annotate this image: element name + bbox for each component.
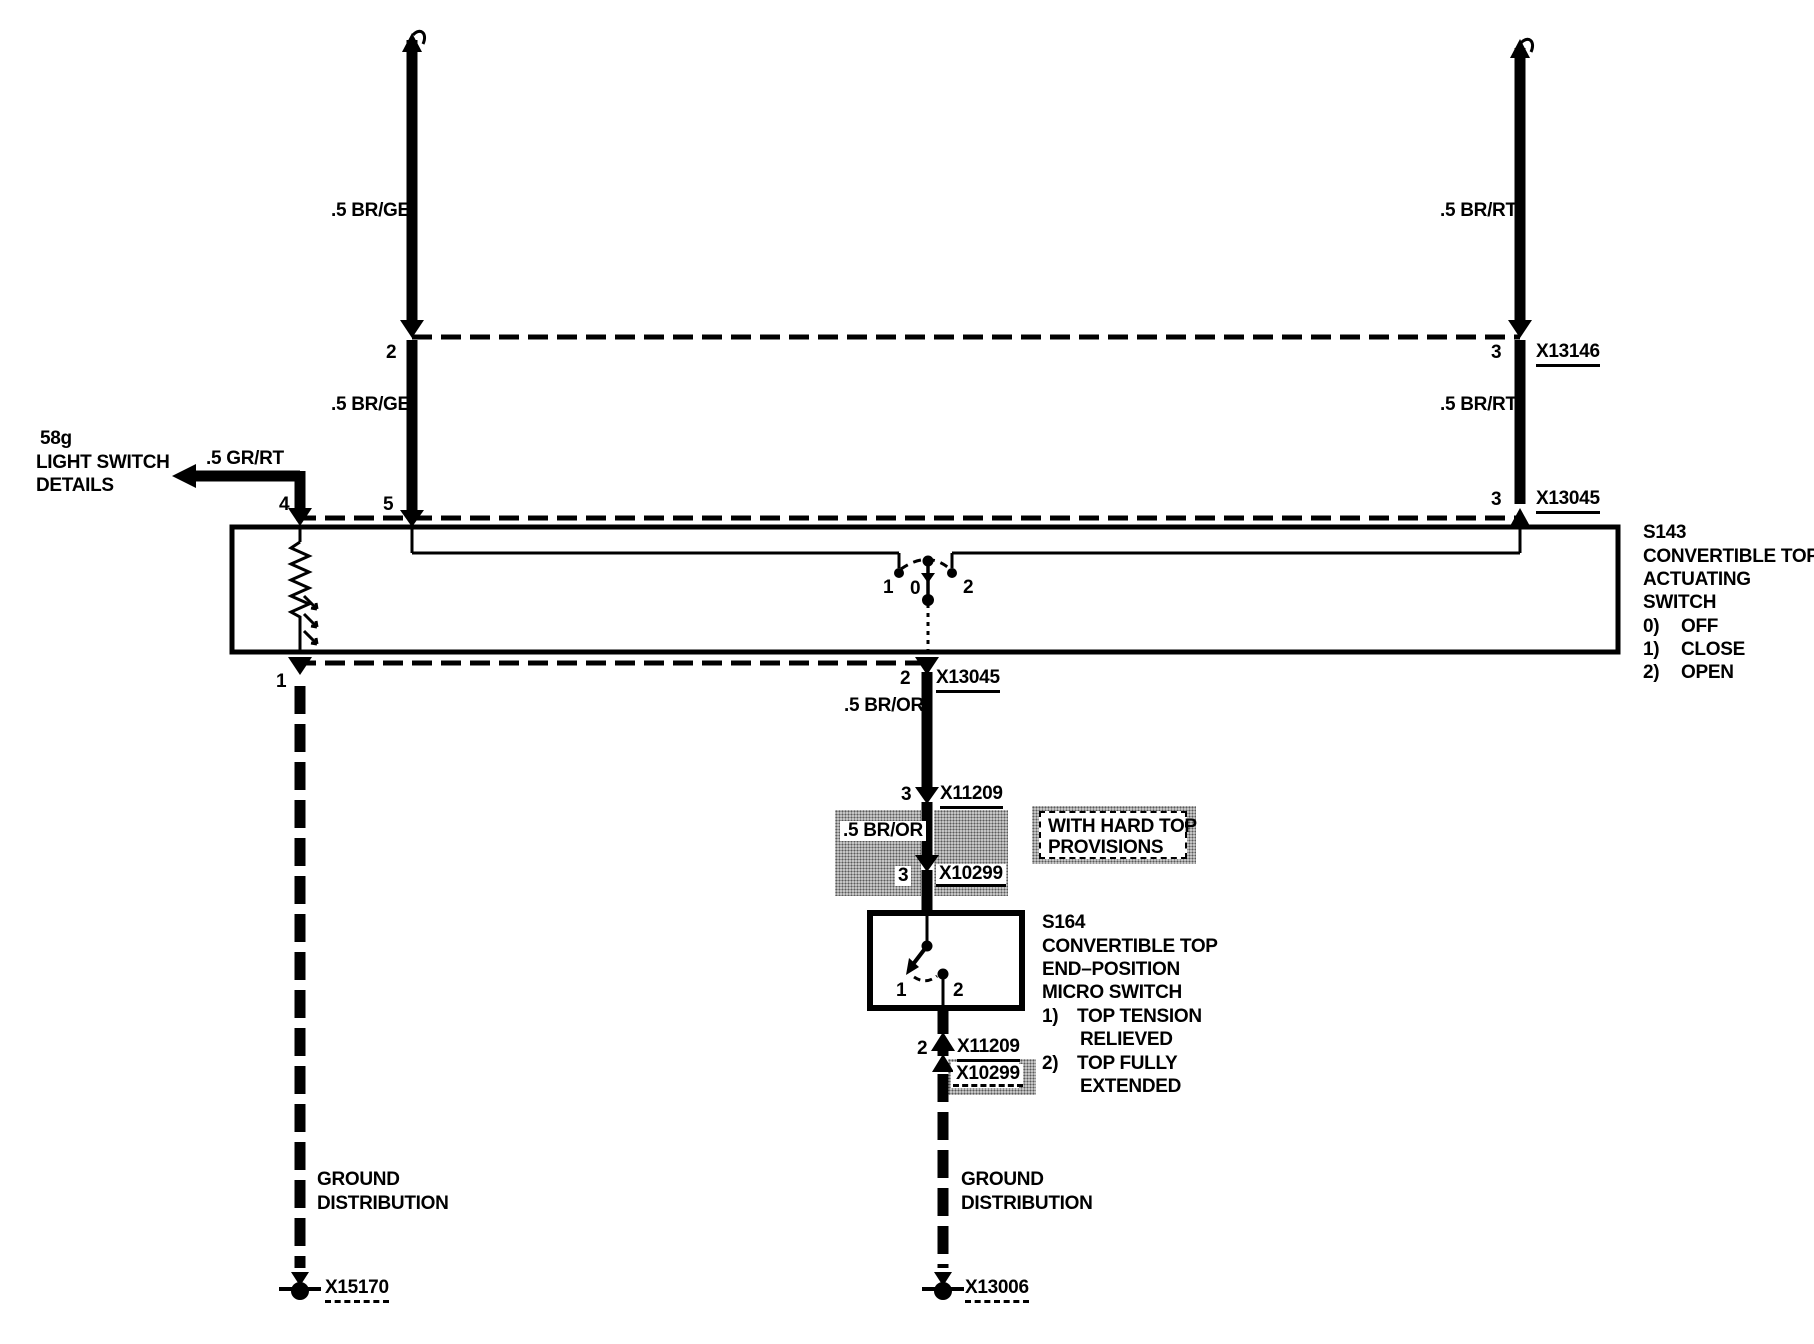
- connector-x11209-exit-label: X11209: [957, 1037, 1020, 1062]
- wire-label-br-or-upper: .5 BR/OR: [844, 696, 924, 716]
- light-switch-code: 58g: [40, 429, 72, 449]
- connector-x13045-right-label: X13045: [1536, 489, 1600, 514]
- s143-pos1-key: 1): [1643, 640, 1659, 660]
- ground-terminal-x15170: [279, 1272, 321, 1300]
- connector-x13006-label: X13006: [965, 1278, 1029, 1303]
- s164-note1-line1: TOP TENSION: [1077, 1007, 1202, 1027]
- light-switch-note-line2: DETAILS: [36, 476, 114, 496]
- hardtop-note-line2: PROVISIONS: [1048, 838, 1163, 858]
- s143-contact1-dot: [894, 568, 904, 578]
- s143-pos1-value: CLOSE: [1681, 640, 1745, 660]
- connector-x10299-exit-label: X10299: [953, 1064, 1023, 1087]
- s143-pos2-key: 2): [1643, 663, 1659, 683]
- ground-left-line2: DISTRIBUTION: [317, 1194, 449, 1214]
- s164-note1-line2: RELIEVED: [1080, 1030, 1173, 1050]
- ground-terminal-x13006: [922, 1272, 964, 1300]
- s164-code: S164: [1042, 913, 1085, 933]
- s164-note2-line2: EXTENDED: [1080, 1077, 1181, 1097]
- s143-pos2-value: OPEN: [1681, 663, 1734, 683]
- arrow-left-light-switch: [172, 464, 196, 488]
- ground-middle-line2: DISTRIBUTION: [961, 1194, 1093, 1214]
- arrow-up-top-right: [1510, 39, 1530, 58]
- light-switch-note-line1: LIGHT SWITCH: [36, 453, 170, 473]
- connector-x13146-label: X13146: [1536, 342, 1600, 367]
- s143-pos0-value: OFF: [1681, 617, 1718, 637]
- arrow-down-pin1: [288, 657, 312, 675]
- arrow-up-s164-x11209: [931, 1032, 955, 1051]
- s143-position-1-label: 1: [883, 578, 893, 598]
- s143-pos0-key: 0): [1643, 617, 1659, 637]
- pin-4-label: 4: [279, 495, 289, 515]
- connector-x11209-upper-label: X11209: [940, 784, 1003, 809]
- pin-2-label-s164-exit: 2: [917, 1039, 927, 1059]
- wire-label-br-or-hardtop: .5 BR/OR: [840, 821, 926, 841]
- s143-name-line1: CONVERTIBLE TOP: [1643, 547, 1814, 567]
- s143-contact2-dot: [947, 568, 957, 578]
- connector-x13045-mid-label: X13045: [936, 668, 1000, 693]
- s164-contact-2-label: 2: [953, 981, 963, 1001]
- s143-pole-top-dot: [923, 556, 934, 567]
- wire-label-br-rt-mid: .5 BR/RT: [1440, 395, 1517, 415]
- arrow-down-x11209: [915, 787, 939, 804]
- connector-x10299-upper-label: X10299: [936, 864, 1006, 887]
- s164-travel-arc: [914, 976, 937, 981]
- s164-contact-1-label: 1: [896, 981, 906, 1001]
- pin-3-label-x13045: 3: [1491, 490, 1501, 510]
- s164-name-line2: END–POSITION: [1042, 960, 1180, 980]
- wire-label-br-ge-mid: .5 BR/GE: [331, 395, 410, 415]
- s143-code: S143: [1643, 523, 1686, 543]
- s143-name-line3: SWITCH: [1643, 593, 1716, 613]
- s164-contact2-dot: [938, 969, 949, 980]
- ground-middle-line1: GROUND: [961, 1170, 1044, 1190]
- wire-label-br-ge-top: .5 BR/GE: [331, 201, 410, 221]
- s143-pole-bottom-dot: [922, 594, 934, 606]
- pin-3-label-x13146: 3: [1491, 343, 1501, 363]
- pin-3-label-x11209: 3: [901, 785, 911, 805]
- s164-box: [870, 913, 1022, 1008]
- pin-2-label-left: 2: [386, 343, 396, 363]
- connector-x15170-label: X15170: [325, 1278, 389, 1303]
- s143-box: [232, 527, 1618, 652]
- s143-position-0-label: 0: [910, 579, 920, 599]
- pin-1-label: 1: [276, 672, 286, 692]
- wiring-diagram-page: 58g LIGHT SWITCH DETAILS .5 GR/RT .5 BR/…: [0, 0, 1814, 1344]
- s143-position-2-label: 2: [963, 578, 973, 598]
- illumination-arrow-2: [304, 614, 317, 627]
- s164-name-line1: CONVERTIBLE TOP: [1042, 937, 1218, 957]
- s164-pivot-dot: [922, 941, 933, 952]
- arrow-up-pin3-x13045: [1509, 508, 1531, 528]
- pin-3-label-x10299: 3: [895, 866, 911, 886]
- arrow-up-top-left: [402, 33, 422, 52]
- arrow-up-s164-x10299: [932, 1054, 954, 1072]
- pin-5-label: 5: [383, 495, 393, 515]
- s164-note2-key: 2): [1042, 1054, 1058, 1074]
- wire-label-br-rt-top: .5 BR/RT: [1440, 201, 1517, 221]
- s164-note1-key: 1): [1042, 1007, 1058, 1027]
- hardtop-note-line1: WITH HARD TOP: [1048, 817, 1197, 837]
- ground-left-line1: GROUND: [317, 1170, 400, 1190]
- pin-2-label-x13045: 2: [900, 669, 910, 689]
- s143-name-line2: ACTUATING: [1643, 570, 1751, 590]
- s143-lever-arrowhead: [921, 573, 935, 583]
- illumination-arrow-3: [304, 631, 317, 644]
- wire-label-gr-rt: .5 GR/RT: [206, 449, 284, 469]
- s164-note2-line1: TOP FULLY: [1077, 1054, 1177, 1074]
- s164-name-line3: MICRO SWITCH: [1042, 983, 1182, 1003]
- arrow-down-x13146-right: [1508, 320, 1532, 338]
